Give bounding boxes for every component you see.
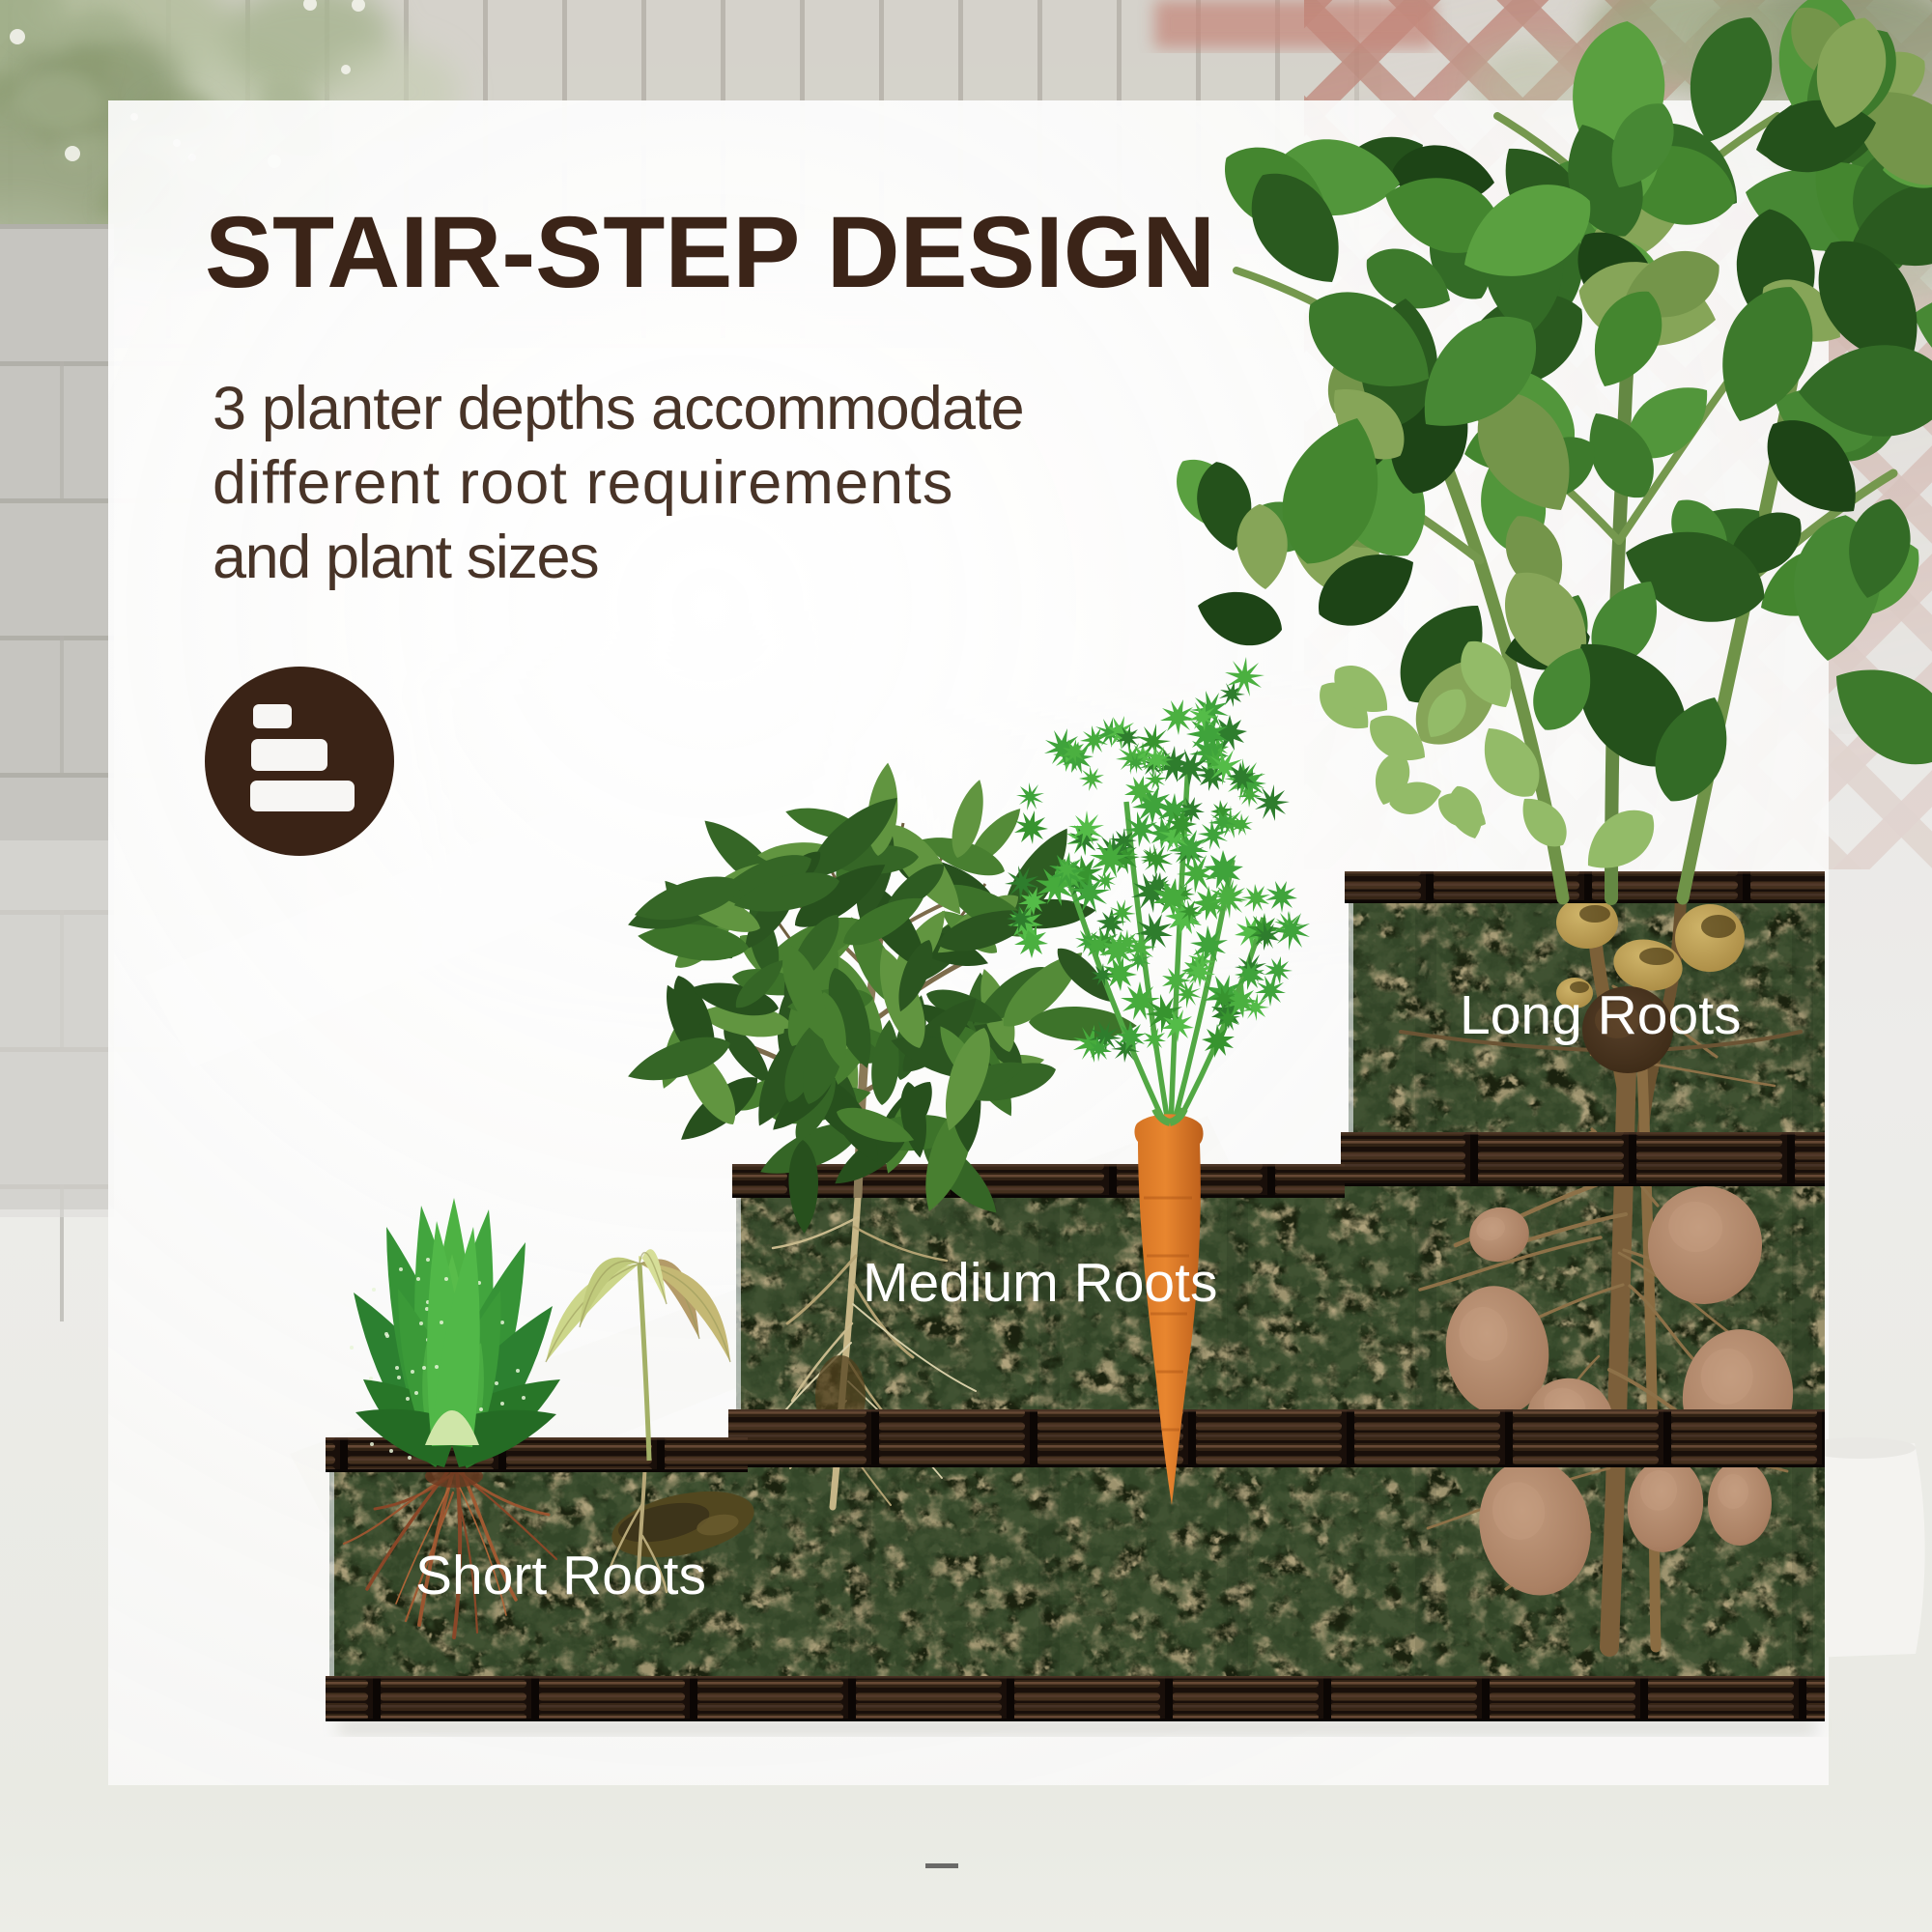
svg-text:STAIR-STEP DESIGN: STAIR-STEP DESIGN — [205, 196, 1215, 309]
svg-text:3 planter depths accommodate: 3 planter depths accommodate — [213, 375, 1024, 442]
svg-text:Medium Roots: Medium Roots — [863, 1252, 1217, 1314]
svg-text:and plant sizes: and plant sizes — [213, 524, 598, 591]
svg-text:Long Roots: Long Roots — [1460, 984, 1742, 1046]
svg-text:Short Roots: Short Roots — [415, 1545, 706, 1606]
svg-text:different root requirements: different root requirements — [213, 449, 953, 517]
